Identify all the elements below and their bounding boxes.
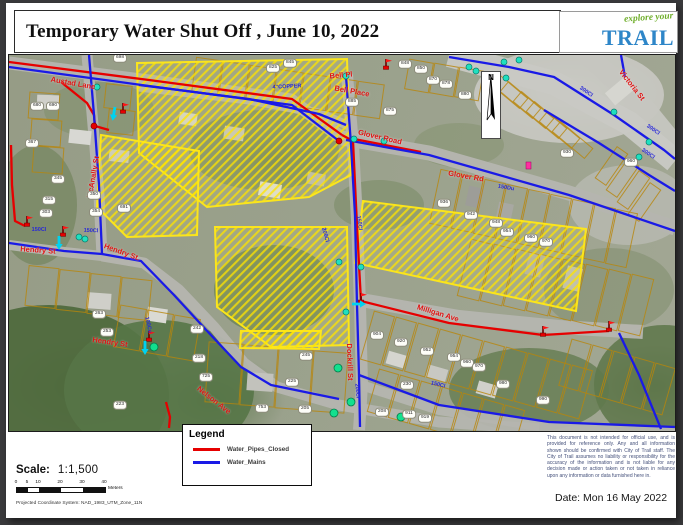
map-canvas: Austad LaneBell PlBell PlaceGlover RoadG… xyxy=(8,54,676,432)
scale-bar-segment xyxy=(83,488,105,492)
scale-bar-segment xyxy=(17,488,28,492)
north-arrow-icon xyxy=(482,72,500,126)
north-arrow: N xyxy=(481,71,501,139)
scale-tick: 30 xyxy=(79,480,84,485)
scale-tick: 10 xyxy=(35,480,40,485)
scale-label: Scale: xyxy=(16,464,50,476)
date-label: Date: Mon 16 May 2022 xyxy=(555,492,667,504)
document-title-box: Temporary Water Shut Off , June 10, 2022 xyxy=(14,10,561,53)
logo-name: TRAIL xyxy=(602,25,674,51)
legend-item-label: Water_Pipes_Closed xyxy=(227,446,289,453)
trail-logo: explore your TRAIL xyxy=(559,11,678,53)
scale-bar-segment xyxy=(61,488,83,492)
projection-note: Projected Coordinate System: NAD_1983_UT… xyxy=(16,501,246,506)
scale-bar: 0510203040 Meters xyxy=(16,480,246,496)
scale-tick: 40 xyxy=(101,480,106,485)
scale-bar-segment xyxy=(39,488,61,492)
scale-units: Meters xyxy=(108,486,123,491)
logo-tagline: explore your xyxy=(623,11,673,24)
legend-line-swatch xyxy=(193,448,220,451)
disclaimer-text: This document is not intended for offici… xyxy=(547,435,675,479)
scale-tick: 0 xyxy=(15,480,18,485)
legend-item: Water_Pipes_Closed xyxy=(193,446,311,453)
legend-title: Legend xyxy=(189,429,311,440)
scale-tick: 5 xyxy=(26,480,29,485)
scale-value: 1:1,500 xyxy=(58,464,98,476)
legend-items: Water_Pipes_ClosedWater_Mains xyxy=(183,446,311,466)
map-document-page: Temporary Water Shut Off , June 10, 2022… xyxy=(6,3,676,518)
scale-block: Scale:1:1,500 0510203040 Meters Projecte… xyxy=(16,464,246,506)
page-title: Temporary Water Shut Off , June 10, 2022 xyxy=(15,21,379,43)
scale-tick: 20 xyxy=(57,480,62,485)
scale-bar-segment xyxy=(28,488,39,492)
map-graphics xyxy=(9,55,675,431)
